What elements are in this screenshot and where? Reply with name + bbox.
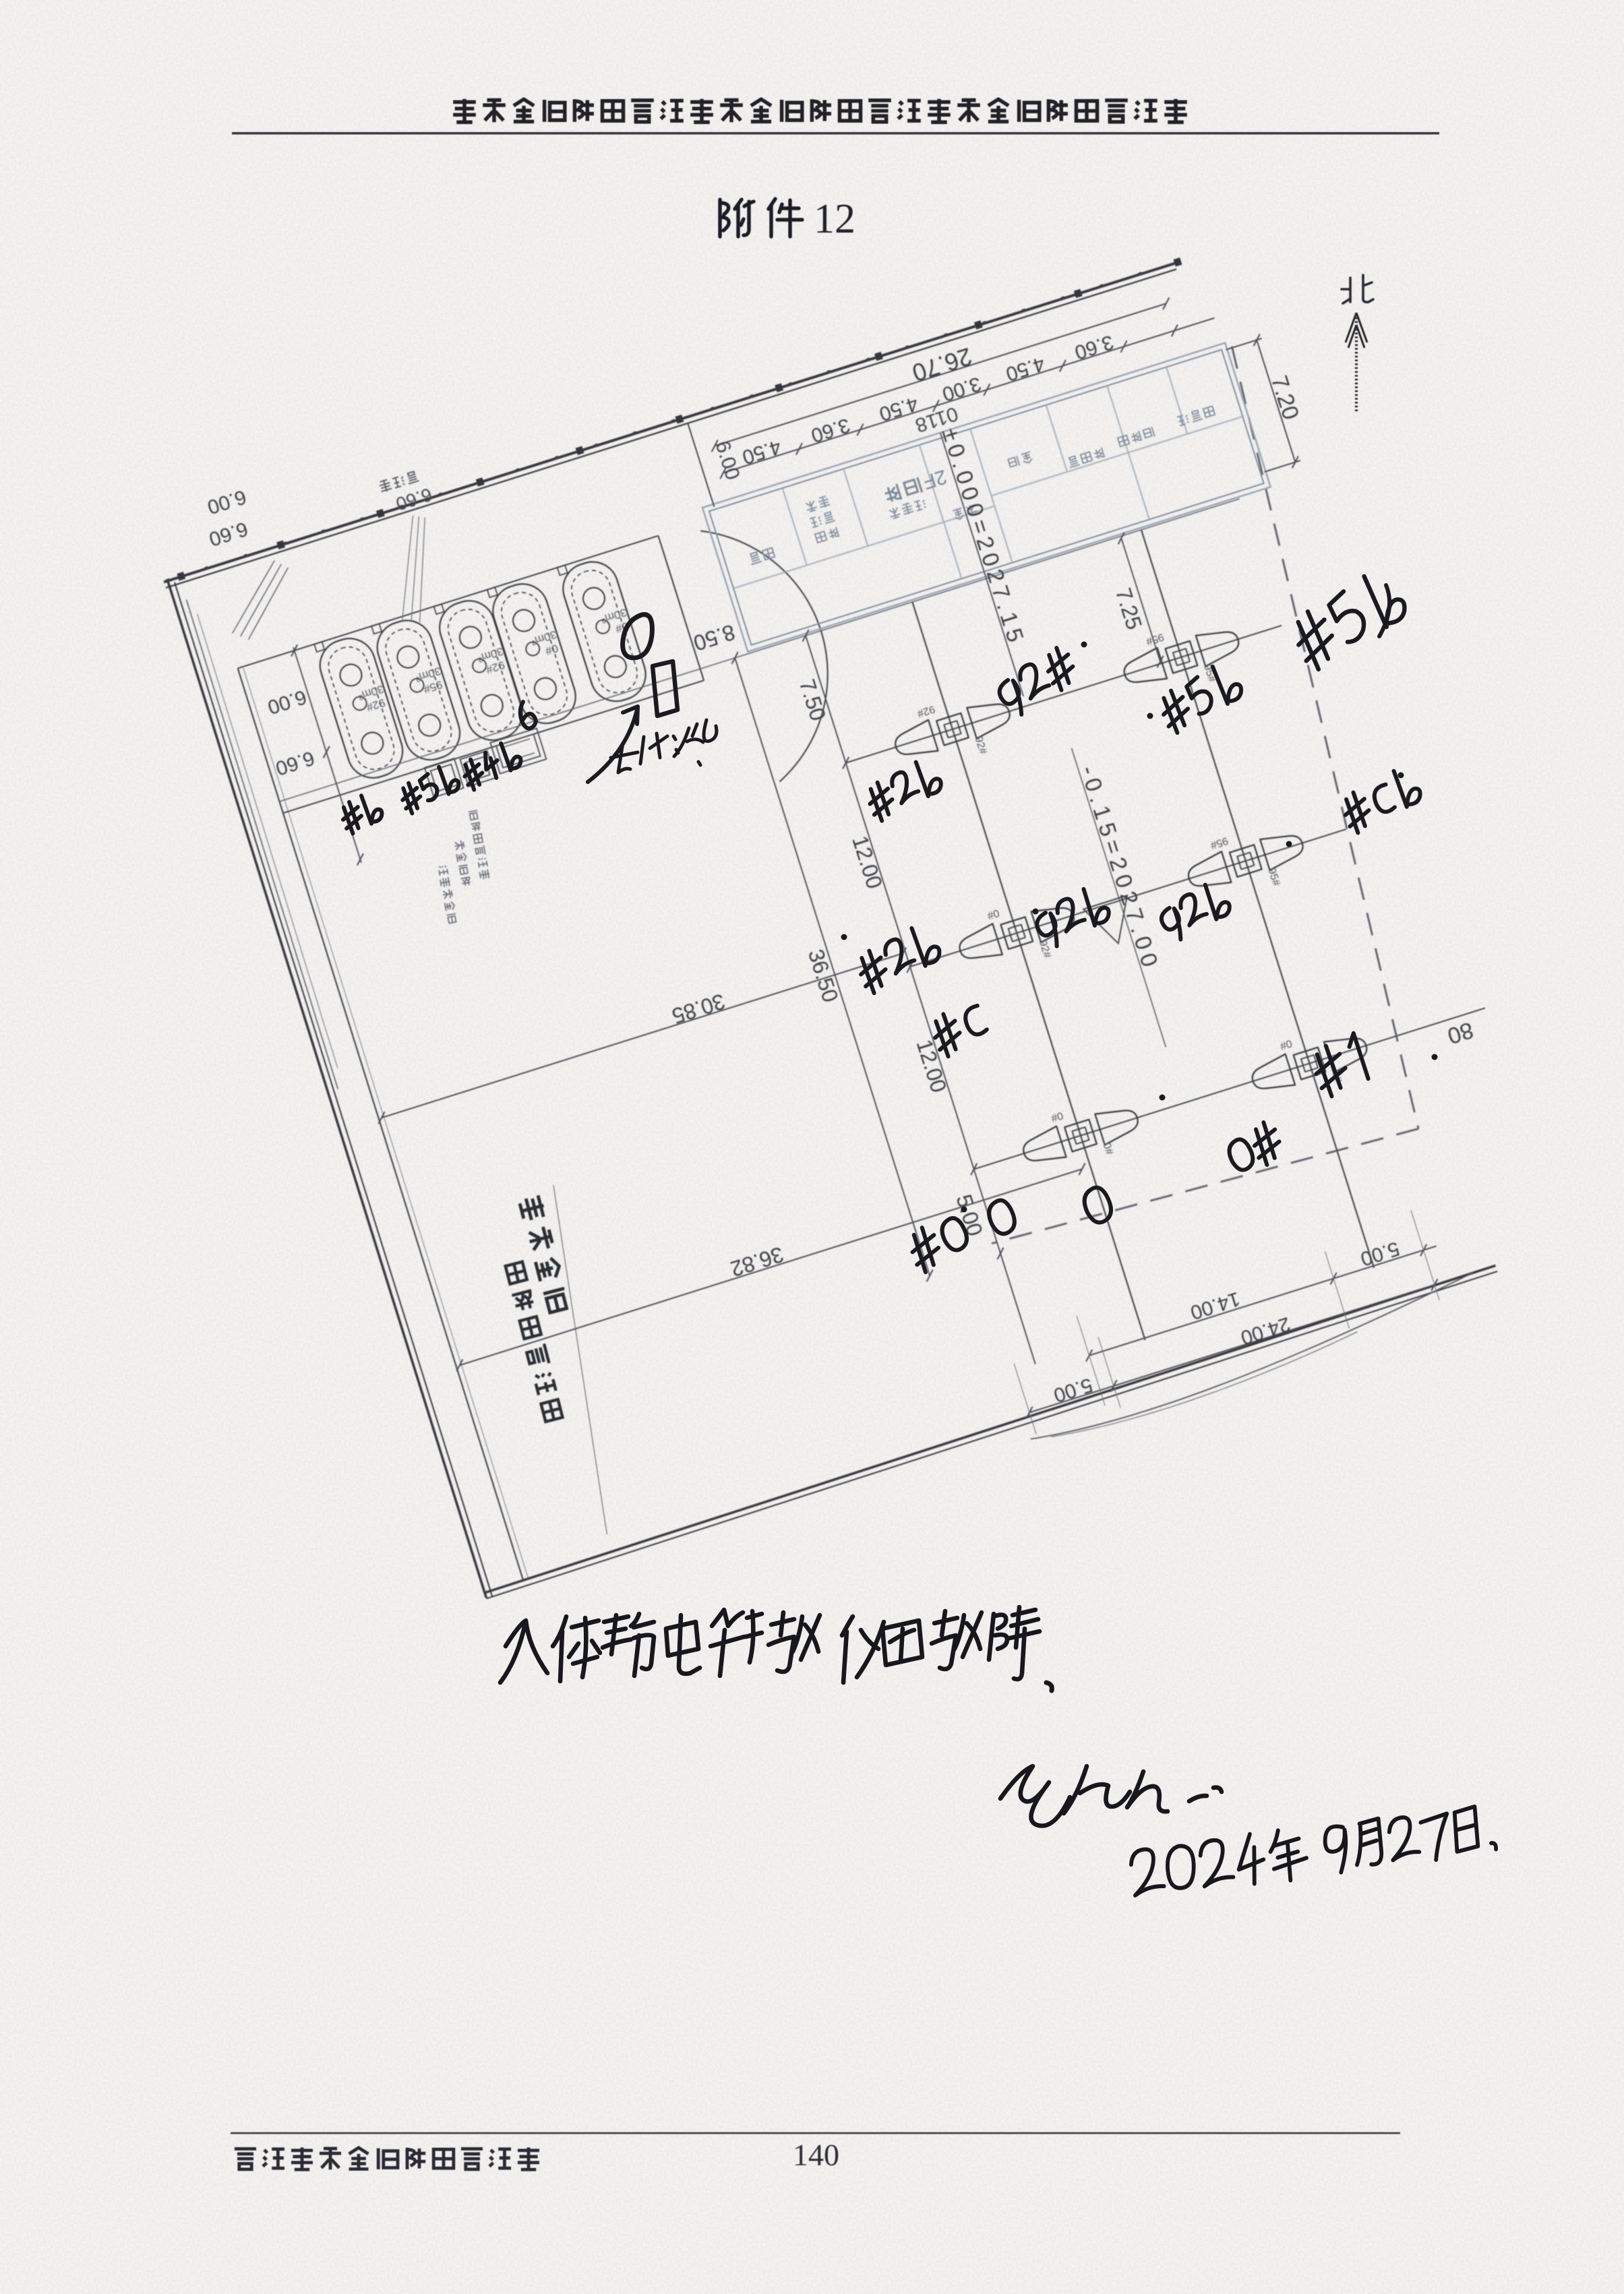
- svg-text:12: 12: [814, 196, 855, 242]
- svg-text:140: 140: [793, 2138, 839, 2172]
